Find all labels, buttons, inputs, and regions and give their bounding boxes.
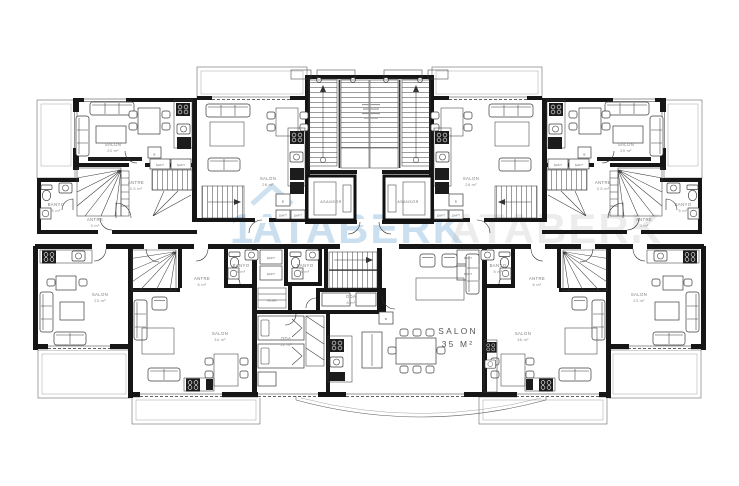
label-banyo-bottomright-area: 5 m² xyxy=(494,269,503,274)
floor-plan-page: 1 ATABERK ATABERK xyxy=(0,0,739,486)
label-banyo-topleft-area: 5 m² xyxy=(52,208,61,213)
label-b: B xyxy=(282,200,284,204)
label-salon34: SALON xyxy=(212,331,228,336)
label-b: B xyxy=(583,153,585,157)
label-kiler: KİLER xyxy=(267,298,277,303)
label-banyo-topleft: BANYO xyxy=(48,202,65,207)
label-antre35-right-area: 3.5 m² xyxy=(597,186,610,191)
label-oda12-area: 12 m² xyxy=(280,342,292,347)
label-antre3-right-area: 3 m² xyxy=(640,223,649,228)
label-salon34-area: 34 m² xyxy=(214,337,226,342)
label-salon23-right-area: 23 m² xyxy=(633,298,645,303)
label-oda8-area: 8 m² xyxy=(347,300,356,305)
label-salon35-area: 35 M² xyxy=(442,339,474,349)
label-salon20-left: SALON xyxy=(105,142,121,147)
label-antre6-right: ANTRE xyxy=(529,276,545,281)
label-antre35-right: ANTRE xyxy=(595,180,611,185)
label-saft: ŞAFT xyxy=(575,163,583,167)
label-salon23-left: SALON xyxy=(92,292,108,297)
label-b: B xyxy=(385,317,387,321)
label-banyo-bottomleft: BANYO xyxy=(233,263,250,268)
label-antre6-left-area: 6 m² xyxy=(198,282,207,287)
label-salon28-left-area: 28 m² xyxy=(262,182,274,187)
label-saft: ŞAFT xyxy=(452,214,460,218)
label-antre3-left-area: 3 m² xyxy=(91,223,100,228)
label-b: B xyxy=(455,200,457,204)
label-saft: ŞAFT xyxy=(464,256,472,260)
label-banyo-bottomright: BANYO xyxy=(490,263,507,268)
label-salon28-left: SALON xyxy=(260,176,276,181)
label-salon28-right: SALON xyxy=(463,176,479,181)
label-antre35-left-area: 3.5 m² xyxy=(130,186,143,191)
plan-left-half xyxy=(33,67,372,424)
label-salon36: SALON xyxy=(515,331,531,336)
label-asansor-right: ASANSÖR xyxy=(397,200,419,204)
label-saft: ŞAFT xyxy=(437,214,445,218)
label-salon20-right: SALON xyxy=(618,142,634,147)
label-saft: ŞAFT xyxy=(267,272,275,276)
label-antre3-right: ANTRE xyxy=(636,217,652,222)
floor-plan-drawing: 1 ATABERK ATABERK xyxy=(0,0,739,486)
label-antre3-left: ANTRE xyxy=(87,217,103,222)
label-saft: ŞAFT xyxy=(177,163,185,167)
label-saft: ŞAFT xyxy=(156,163,164,167)
label-salon28-right-area: 28 m² xyxy=(465,182,477,187)
label-banyo-bottomleft-area: 5 m² xyxy=(237,269,246,274)
label-banyo-topright: BANYO xyxy=(675,202,692,207)
label-b: B xyxy=(153,153,155,157)
label-saft: ŞAFT xyxy=(554,163,562,167)
label-salon20-left-area: 20 m² xyxy=(107,148,119,153)
label-saft: ŞAFT xyxy=(294,214,302,218)
label-oda8: ODA xyxy=(346,294,356,299)
label-saft: ŞAFT xyxy=(464,272,472,276)
label-salon36-area: 36 m² xyxy=(517,337,529,342)
label-salon23-left-area: 23 m² xyxy=(94,298,106,303)
label-antre35-left: ANTRE xyxy=(128,180,144,185)
label-banyo-topright-area: 5 m² xyxy=(679,208,688,213)
label-banyo-bottomcenter-area: 5 m² xyxy=(301,269,310,274)
label-asansor-left: ASANSÖR xyxy=(320,200,342,204)
label-antre6-right-area: 6 m² xyxy=(533,282,542,287)
label-saft: ŞAFT xyxy=(267,256,275,260)
label-salon20-right-area: 20 m² xyxy=(620,148,632,153)
label-antre6-left: ANTRE xyxy=(194,276,210,281)
label-banyo-bottomcenter: BANYO xyxy=(297,263,314,268)
label-salon35: SALON xyxy=(438,326,477,336)
label-salon23-right: SALON xyxy=(631,292,647,297)
label-oda12: ODA xyxy=(281,336,291,341)
label-saft: ŞAFT xyxy=(279,214,287,218)
